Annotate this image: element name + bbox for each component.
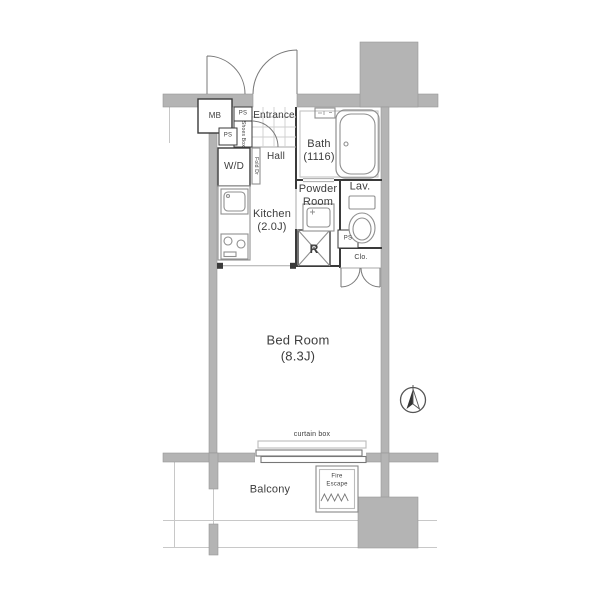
fire-escape-line1: Fire (326, 474, 347, 482)
closet-door-arc-right (361, 268, 380, 287)
label-refrigerator: R (310, 242, 319, 256)
balcony-pier-left (209, 453, 218, 489)
room-label-bath: Bath (1116) (303, 138, 334, 164)
bath-size: (1116) (303, 151, 334, 164)
fire-escape-line2: Escape (326, 481, 347, 489)
entrance-door-arc (253, 50, 297, 94)
kitchen-name: Kitchen (253, 208, 291, 221)
north-arrow-icon (401, 385, 426, 413)
closet-door-arc-left (341, 268, 360, 287)
room-label-entrance: Entrance (253, 110, 295, 122)
bath-name: Bath (303, 138, 334, 151)
toilet (349, 196, 375, 243)
room-label-powder-room: Powder Room (299, 183, 338, 209)
room-label-lavatory: Lav. (350, 180, 371, 193)
wall-left (209, 107, 217, 453)
wall-stub (217, 263, 223, 269)
kitchen-counter (218, 186, 250, 260)
compass-needle-dark (407, 389, 414, 409)
label-washer-dryer: W/D (224, 161, 244, 173)
room-label-balcony: Balcony (250, 483, 291, 496)
powder-line2: Room (299, 196, 338, 209)
label-curtain-box: curtain box (294, 431, 330, 439)
bathtub (336, 110, 379, 178)
label-fire-escape: Fire Escape (326, 474, 347, 489)
floorplan-drawing (0, 0, 600, 599)
bath-counter-marks (318, 111, 332, 115)
compass-needle-light (413, 389, 420, 409)
bedroom-size: (8.3J) (266, 348, 329, 364)
wall-stub (290, 263, 296, 269)
bedroom-name: Bed Room (266, 332, 329, 348)
window-assembly (255, 441, 366, 464)
room-label-bedroom: Bed Room (8.3J) (266, 332, 329, 363)
powder-line1: Powder (299, 183, 338, 196)
label-meter-box: MB (209, 111, 221, 121)
pier-bottom-left (209, 524, 218, 555)
label-folding-door: Fold Dr (253, 157, 259, 175)
label-pipe-space-top: PS (239, 110, 247, 117)
label-pipe-space-left: PS (224, 132, 232, 139)
bathtub-drain (344, 142, 348, 146)
floor-plan: MB PS Shoes Box PS W/D Fold Dr Hall Entr… (0, 0, 600, 599)
wall-segment (365, 453, 438, 462)
room-label-hall: Hall (267, 151, 285, 163)
pillar-top-right (360, 42, 418, 107)
bathtub-inner (340, 114, 375, 174)
room-label-kitchen: Kitchen (2.0J) (253, 208, 291, 234)
label-pipe-space-small: PS (344, 235, 352, 242)
label-closet: Clo. (354, 254, 367, 262)
kitchen-size: (2.0J) (253, 221, 291, 234)
meter-box-door-arc (207, 56, 245, 94)
hatch-ladder-marks (321, 494, 348, 501)
label-shoes-box: Shoes Box (240, 121, 246, 147)
bath-door-lines (303, 179, 334, 182)
pillar-bottom-right (358, 497, 418, 548)
curtain-box (258, 441, 366, 448)
toilet-tank (349, 196, 375, 209)
wall-right (381, 107, 389, 457)
